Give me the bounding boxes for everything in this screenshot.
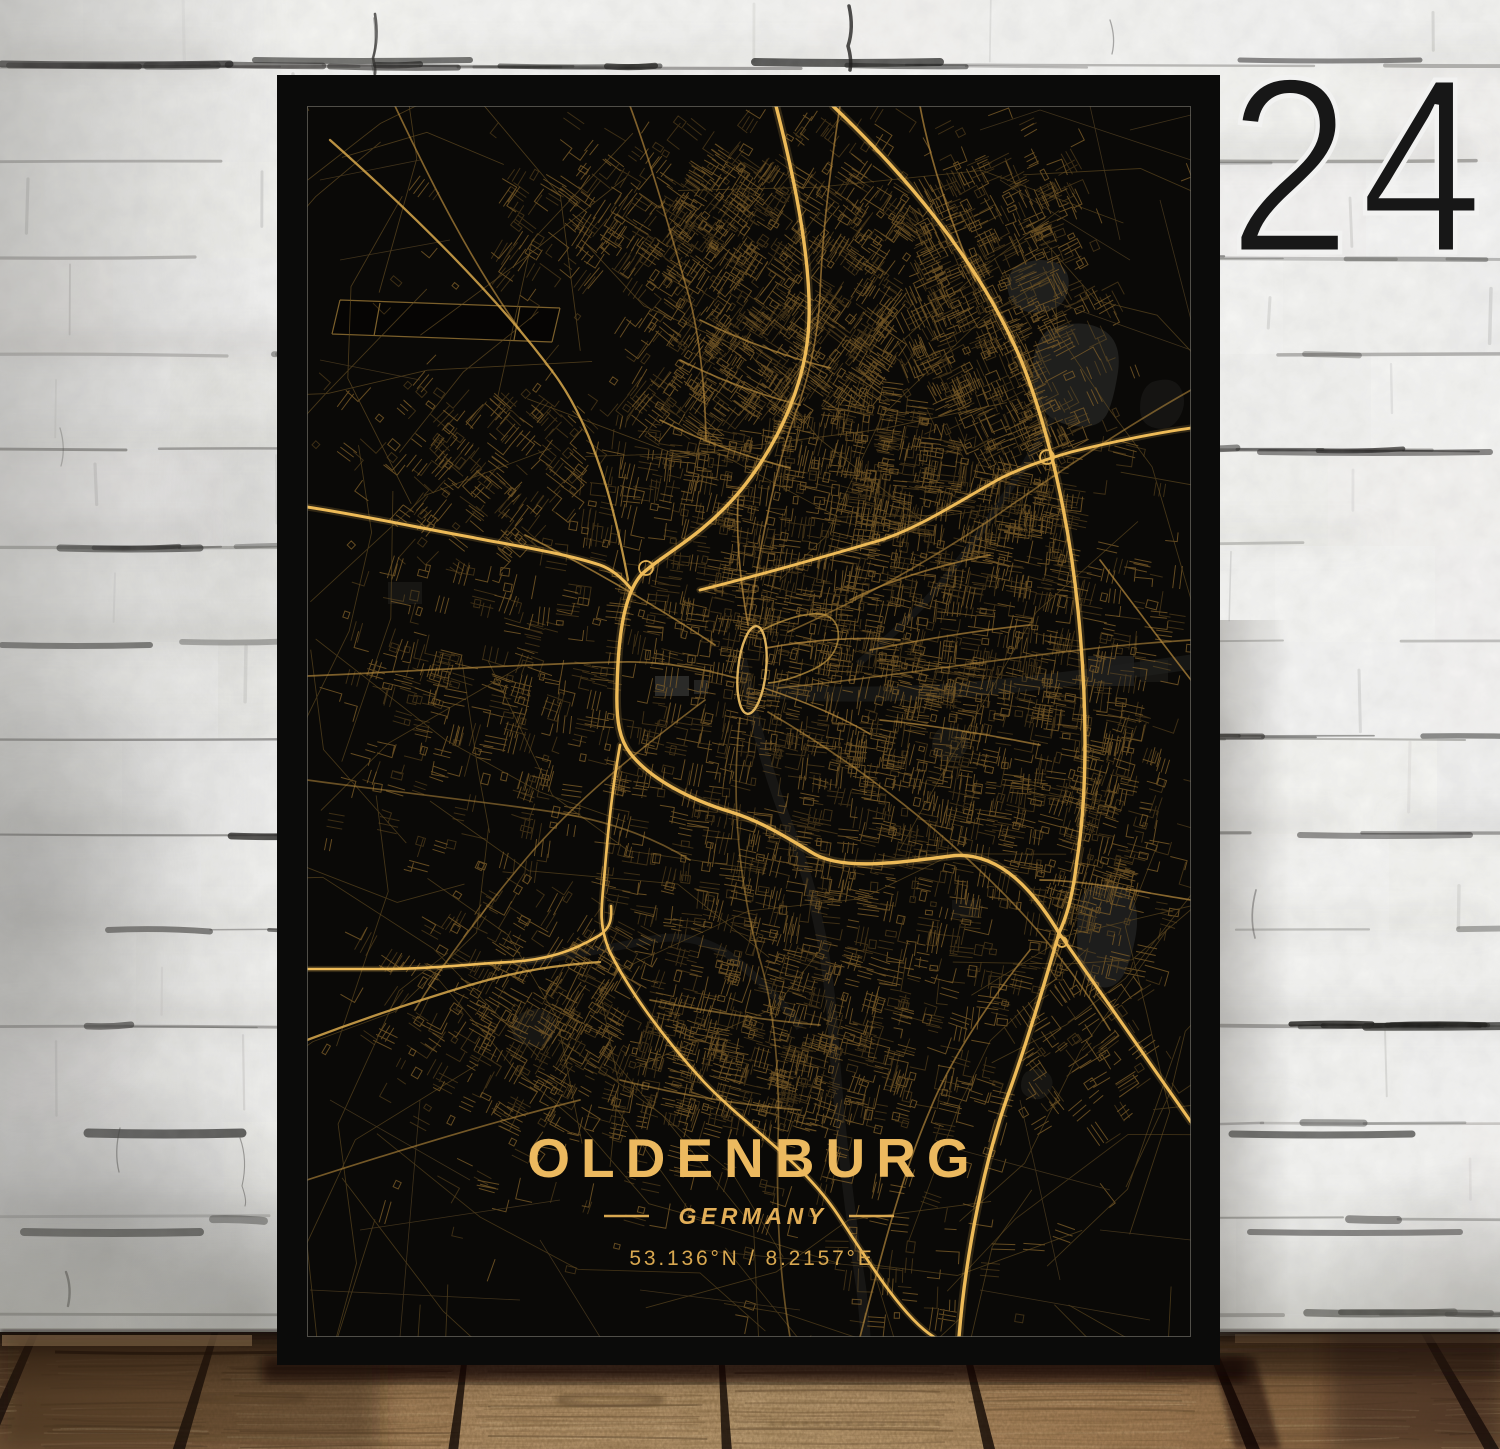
svg-text:OLDENBURG: OLDENBURG [527, 1127, 980, 1189]
svg-text:53.136°N / 8.2157°E: 53.136°N / 8.2157°E [629, 1247, 874, 1270]
svg-text:GERMANY: GERMANY [678, 1203, 827, 1229]
svg-text:24: 24 [1228, 26, 1492, 306]
